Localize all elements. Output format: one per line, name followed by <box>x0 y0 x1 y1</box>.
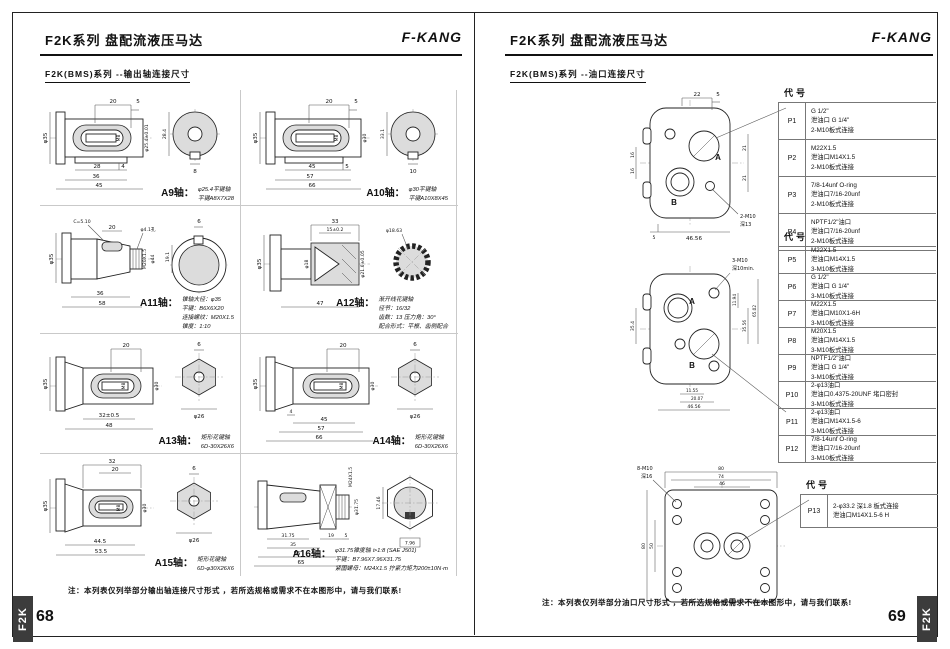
shaft-label-a9: A9轴： φ25.4平键轴平键A8X7X28 <box>161 184 234 204</box>
dim-label: 22 <box>693 92 700 98</box>
left-page-title: F2K系列 盘配流液压马达 <box>45 30 203 49</box>
port-spec: 泄油口M10X1-6H <box>811 309 860 318</box>
dim-label: φ30 <box>142 503 148 512</box>
port-code: P9 <box>778 355 806 381</box>
dim-label: 21 <box>742 145 748 151</box>
port-code: P12 <box>778 436 806 462</box>
shaft-cell-a15: 32 20 φ35 M8 φ30 44.5 53.5 6 φ26 A15轴： 矩… <box>42 455 238 575</box>
table-row: P11 2-φ13油口泄油口M14X1.5-63-M10板式连接 <box>778 408 936 435</box>
left-header-rule <box>40 54 462 56</box>
dim-label: M8 <box>116 134 122 141</box>
shaft-name: A15轴： <box>155 554 193 569</box>
right-side-tab: F2K <box>917 596 937 642</box>
dim-label: φ18 <box>304 259 310 268</box>
shaft-label-a15: A15轴： 矩形花键轴6D-φ30X26X6 <box>155 554 234 574</box>
shaft-desc-line: 6D-30X26X6 <box>201 443 234 452</box>
shaft-desc-line: 矩形花键轴 <box>415 434 448 443</box>
dim-label: φ26 <box>189 538 200 544</box>
left-page-number: 68 <box>36 608 54 626</box>
dim-label: M8 <box>339 382 345 389</box>
grid-line <box>40 453 458 454</box>
port-diagram-1: A B 22 5 16 16 21 21 5 46.56 2-M10 深13 <box>612 86 787 244</box>
shaft-name: A11轴： <box>140 294 178 309</box>
shaft-name: A16轴： <box>293 545 331 560</box>
dim-label: φ26 <box>410 414 421 420</box>
dim-label: 6 <box>197 342 201 348</box>
port-spec: 泄油口7/16-20unf <box>811 444 860 453</box>
dim-label: 46.56 <box>686 236 702 242</box>
shaft-cell-a11: C=5.10 20 φ4.1孔 φ35 M20X1.5 φ44 36 58 6 … <box>42 207 238 333</box>
grid-line <box>456 90 457 576</box>
shaft-desc-line: 连接螺纹：M20X1.5 <box>182 314 234 323</box>
dim-label: 20 <box>111 467 119 473</box>
dim-label: 57 <box>317 426 325 432</box>
dim-label: 33.1 <box>380 129 386 139</box>
port-spec: M22X1.5 <box>811 144 855 153</box>
dim-label: 33 <box>331 219 339 225</box>
shaft-cell-a14: 20 φ35 M8 φ30 4 45 57 66 6 φ26 A14轴： 矩形花… <box>252 335 452 453</box>
dim-label: 74 <box>718 474 724 480</box>
dim-label: φ4.1孔 <box>141 226 156 233</box>
port-spec: 泄油口0.4375-20UNF 堵口密封 <box>811 390 898 399</box>
port-spec: 泄油口M14X1.5 <box>811 336 855 345</box>
port-spec: 泄油口7/16-20unf <box>811 190 860 199</box>
shaft-name: A12轴： <box>336 294 374 309</box>
dim-label: 80 <box>718 466 724 472</box>
left-side-tab: F2K <box>13 596 33 642</box>
port-spec: M22X1.5 <box>811 246 855 255</box>
shaft-label-a10: A10轴： φ30平键轴平键A10X8X45 <box>366 184 448 204</box>
dim-label: 21 <box>742 175 748 181</box>
dim-label: φ35 <box>43 500 49 511</box>
shaft-desc-line: 紧固螺母：M24X1.5 拧紧力矩为200±10N·m <box>335 565 448 574</box>
shaft-desc-line: 6D-φ30X26X6 <box>197 565 234 574</box>
dim-label: 57 <box>306 174 314 180</box>
port-code: P11 <box>778 409 806 435</box>
shaft-label-a11: A11轴： 锥轴大径：φ35平键：B6X6X20连接螺纹：M20X1.5锥度：1… <box>140 294 234 332</box>
shaft-desc-line: 6D-30X26X6 <box>415 443 448 452</box>
grid-line <box>40 205 458 206</box>
shaft-desc-line: 平键：B7.96X7.96X31.75 <box>335 556 448 565</box>
shaft-desc-line: 锥度：1:10 <box>182 323 234 332</box>
callout-label: 深13 <box>740 221 751 228</box>
right-footnote: 注：本列表仅列举部分油口尺寸形式 ，若所选规格或需求不在本图形中，请与我们联系! <box>542 597 922 608</box>
dim-label: 35.56 <box>742 320 747 332</box>
shaft-desc-line: φ31.75锥度轴 ⊳1:8 (SAE J501) <box>335 547 448 556</box>
port-spec: 泄油口M14X1.5 <box>811 255 855 264</box>
dim-label: 32±0.5 <box>99 413 120 419</box>
shaft-name: A13轴： <box>158 432 196 447</box>
dim-label: φ26 <box>194 414 205 420</box>
dim-label: 5 <box>136 99 140 105</box>
right-page-number: 69 <box>888 608 906 626</box>
dim-label: φ35 <box>43 378 49 389</box>
table-row: P6 G 1/2"泄油口 G 1/4"3-M10板式连接 <box>778 273 936 300</box>
port-spec: 3-M10板式连接 <box>811 454 860 463</box>
dim-label: 19.1 <box>165 252 171 262</box>
port-code: P8 <box>778 328 806 354</box>
shaft-name: A10轴： <box>366 184 404 199</box>
dim-label: 5 <box>716 92 720 98</box>
dim-label: 20 <box>339 343 347 349</box>
port-spec: G 1/2" <box>811 107 854 116</box>
port-b-label: B <box>689 361 695 370</box>
dim-label: 28 <box>93 164 101 170</box>
port-spec: NPTF1/2"油口 <box>811 218 860 227</box>
port-spec: 泄油口 G 1/4" <box>811 363 854 372</box>
shaft-desc-line: 径节：16/32 <box>378 305 448 314</box>
shaft-desc-line: 齿数：13 压力角：30° <box>378 314 448 323</box>
right-page-title: F2K系列 盘配流液压马达 <box>510 30 668 49</box>
dim-label: φ18.63 <box>386 228 402 234</box>
dim-label: 10 <box>409 169 417 175</box>
dim-label: φ30 <box>370 381 376 390</box>
dim-label: 5 <box>345 533 348 539</box>
dim-label: φ30 <box>362 133 368 142</box>
dim-label: 58 <box>98 301 106 307</box>
dim-label: 36 <box>92 174 100 180</box>
port-code: P1 <box>778 103 806 139</box>
port-table-p1-p4: 代号 P1 G 1/2"泄油口 G 1/4"2-M10板式连接 P2 M22X1… <box>778 86 936 251</box>
shaft-desc-line: φ30平键轴 <box>409 186 448 195</box>
table-row: P7 M22X1.5泄油口M10X1-6H3-M10板式连接 <box>778 300 936 327</box>
dim-label: 45 <box>320 417 328 423</box>
port-code: P7 <box>778 301 806 327</box>
dim-label: 4 <box>290 409 293 415</box>
dim-label: M24X1.5 <box>348 467 354 487</box>
dim-label: 11.55 <box>686 388 698 393</box>
dim-label: 32 <box>108 459 115 465</box>
table-row: P5 M22X1.5泄油口M14X1.53-M10板式连接 <box>778 246 936 273</box>
dim-label: 20 <box>109 99 117 105</box>
dim-label: 5 <box>345 164 349 170</box>
port-a-label: A <box>689 297 695 306</box>
dim-label: φ35 <box>43 132 49 143</box>
shaft-desc-line: 渐开线花键轴 <box>378 296 448 305</box>
port-spec: 2-φ13油口 <box>811 408 861 417</box>
port-spec: 7/8-14unf O-ring <box>811 181 860 190</box>
dim-label: 16 <box>630 152 636 158</box>
port-spec: 泄油口M14X1.5-6 <box>811 417 861 426</box>
dim-label: 45 <box>95 183 103 189</box>
dim-label: φ25.4±0.01 <box>144 124 150 151</box>
dim-label: 53.5 <box>95 549 108 555</box>
shaft-cell-a10: 20 5 φ35 M8 φ30 45 5 57 66 33.1 10 A10轴：… <box>252 92 452 205</box>
table-row: P1 G 1/2"泄油口 G 1/4"2-M10板式连接 <box>778 102 936 139</box>
center-divider <box>474 12 475 635</box>
dim-label: 35.4 <box>630 321 636 331</box>
shaft-cell-a13: 20 φ35 M8 φ30 32±0.5 48 6 φ26 A13轴： 矩形花键… <box>42 335 238 453</box>
port-code: P6 <box>778 274 806 300</box>
dim-label: 46 <box>719 481 725 487</box>
port-table-p5-p12: 代号 P5 M22X1.5泄油口M14X1.53-M10板式连接 P6 G 1/… <box>778 230 936 463</box>
dim-label: 20 <box>122 343 130 349</box>
shaft-name: A14轴： <box>372 432 410 447</box>
dim-label: 20.07 <box>691 396 703 401</box>
port-spec: 泄油口M14X1.5-6 H <box>833 511 899 520</box>
port-spec: 2-φ13油口 <box>811 381 898 390</box>
dim-label: 8 <box>193 169 197 175</box>
table-row: P8 M20X1.5泄油口M14X1.53-M10板式连接 <box>778 327 936 354</box>
port-spec: M20X1.5 <box>811 327 855 336</box>
dim-label: φ31.75 <box>354 499 360 515</box>
dim-label: 5 <box>653 235 656 241</box>
dim-label: 65.02 <box>752 305 757 317</box>
callout-label: 3-M10 <box>732 258 748 264</box>
port-spec: 泄油口M14X1.5 <box>811 153 855 162</box>
dim-label: 6 <box>197 219 201 225</box>
port-spec: 泄油口 G 1/4" <box>811 116 854 125</box>
dim-label: 6 <box>413 342 417 348</box>
dim-label: 48 <box>105 423 113 429</box>
port-spec: 2-M10板式连接 <box>811 200 860 209</box>
dim-label: 45 <box>308 164 316 170</box>
dim-label: 66 <box>308 183 316 189</box>
right-subtitle: F2K(BMS)系列 --油口连接尺寸 <box>510 68 646 83</box>
callout-label: 深10min. <box>732 265 755 272</box>
port-face-drawing-2: A B 3-M10 深10min. 35.4 11.94 35.56 65.02… <box>612 246 787 414</box>
table-header: 代号 <box>784 230 936 243</box>
dim-label: 4 <box>121 164 125 170</box>
dim-label: M8 <box>334 134 340 141</box>
callout-label: 深16 <box>641 473 652 480</box>
port-code: P13 <box>800 495 828 527</box>
dim-label: 20 <box>325 99 333 105</box>
shaft-desc-line: φ25.4平键轴 <box>198 186 234 195</box>
port-table-p13: 代号 P13 2-φ33.2 深1.8 板式连接泄油口M14X1.5-6 H <box>800 478 938 528</box>
dim-label: φ35 <box>257 258 263 269</box>
dim-label: φ35 <box>253 378 259 389</box>
dim-label: 66 <box>315 435 323 441</box>
dim-label: φ30 <box>154 381 160 390</box>
dim-label: M8 <box>121 382 127 389</box>
dim-label: 15±0.2 <box>326 227 343 233</box>
dim-label: M8 <box>116 504 122 511</box>
port-spec: 2-φ33.2 深1.8 板式连接 <box>833 502 899 511</box>
dim-label: 20 <box>108 225 116 231</box>
left-footnote: 注：本列表仅列举部分输出轴连接尺寸形式 ，若所选规格或需求不在本图形中，请与我们… <box>68 585 418 596</box>
catalog-spread: F2K系列 盘配流液压马达 F-KANG F2K(BMS)系列 --输出轴连接尺… <box>0 0 950 649</box>
table-header: 代号 <box>806 478 938 491</box>
port-spec: M22X1.5 <box>811 300 860 309</box>
port-spec: 2-M10板式连接 <box>811 163 855 172</box>
grid-line <box>240 90 241 576</box>
right-brand-logo: F-KANG <box>800 29 932 45</box>
port-code: P3 <box>778 177 806 213</box>
grid-line <box>40 333 458 334</box>
shaft-cell-a12: 33 15±0.2 φ35 φ18 φ21.6±0.05 47 φ18.63 A… <box>252 207 452 333</box>
shaft-desc-line: 锥轴大径：φ35 <box>182 296 234 305</box>
table-row: P9 NPTF1/2"油口泄油口 G 1/4"3-M10板式连接 <box>778 354 936 381</box>
dim-label: M20X1.5 <box>142 249 148 269</box>
left-brand-logo: F-KANG <box>330 29 462 45</box>
port-spec: 2-M10板式连接 <box>811 126 854 135</box>
shaft-name: A9轴： <box>161 184 194 199</box>
callout-label: 8-M10 <box>637 466 653 472</box>
dim-label: 11.94 <box>732 294 737 306</box>
dim-label: 44.5 <box>94 539 107 545</box>
left-subtitle: F2K(BMS)系列 --输出轴连接尺寸 <box>45 68 190 83</box>
table-row: P3 7/8-14unf O-ring泄油口7/16-20unf2-M10板式连… <box>778 176 936 213</box>
port-b-label: B <box>671 198 677 207</box>
dim-label: 80 <box>641 543 647 549</box>
port-code: P2 <box>778 140 806 176</box>
dim-label: C=5.10 <box>73 219 90 225</box>
dim-label: 28.4 <box>162 129 168 139</box>
dim-label: 47 <box>316 301 324 307</box>
shaft-cell-a9: 20 5 φ35 M8 φ25.4±0.01 28 4 36 45 28.4 8… <box>42 92 238 205</box>
port-face-drawing-1: A B 22 5 16 16 21 21 5 46.56 2-M10 深13 <box>612 86 787 244</box>
port-code: P10 <box>778 382 806 408</box>
port-spec: G 1/2" <box>811 273 854 282</box>
shaft-desc-line: 平键A8X7X28 <box>198 195 234 204</box>
port-code: P5 <box>778 247 806 273</box>
dim-label: φ35 <box>253 132 259 143</box>
port-diagram-2: A B 3-M10 深10min. 35.4 11.94 35.56 65.02… <box>612 246 787 414</box>
port-spec: NPTF1/2"油口 <box>811 354 854 363</box>
table-header: 代号 <box>784 86 936 99</box>
port-spec: 7/8-14unf O-ring <box>811 435 860 444</box>
shaft-label-a16: A16轴： φ31.75锥度轴 ⊳1:8 (SAE J501)平键：B7.96X… <box>293 545 448 574</box>
dim-label: φ44 <box>150 254 156 263</box>
table-row: P2 M22X1.5泄油口M14X1.52-M10板式连接 <box>778 139 936 176</box>
shaft-cell-a16: M24X1.5 φ31.75 31.75 35 19 5 55 65 17.46… <box>252 455 452 575</box>
right-header-rule <box>505 54 933 56</box>
dim-label: φ35 <box>49 253 55 264</box>
port-a-label: A <box>715 153 721 162</box>
dim-label: 6 <box>192 466 196 472</box>
dim-label: 19 <box>328 533 334 539</box>
dim-label: 46.56 <box>687 404 700 410</box>
dim-label: 17.46 <box>376 496 382 509</box>
shaft-desc-line: 平键A10X8X45 <box>409 195 448 204</box>
table-row: P10 2-φ13油口泄油口0.4375-20UNF 堵口密封3-M10板式连接 <box>778 381 936 408</box>
shaft-label-a13: A13轴： 矩形花键轴6D-30X26X6 <box>158 432 234 452</box>
dim-label: 5 <box>354 99 358 105</box>
shaft-label-a14: A14轴： 矩形花键轴6D-30X26X6 <box>372 432 448 452</box>
table-row: P12 7/8-14unf O-ring泄油口7/16-20unf3-M10板式… <box>778 435 936 463</box>
shaft-desc-line: 矩形花键轴 <box>201 434 234 443</box>
shaft-desc-line: 配合形式：平根、齿侧配合 <box>378 323 448 332</box>
dim-label: φ21.6±0.05 <box>360 250 366 277</box>
callout-label: 2-M10 <box>740 214 756 220</box>
dim-label: 36 <box>96 291 104 297</box>
dim-label: 50 <box>649 543 655 549</box>
dim-label: 16 <box>630 168 636 174</box>
shaft-desc-line: 平键：B6X6X20 <box>182 305 234 314</box>
shaft-label-a12: A12轴： 渐开线花键轴径节：16/32齿数：13 压力角：30°配合形式：平根… <box>336 294 448 332</box>
table-row: P13 2-φ33.2 深1.8 板式连接泄油口M14X1.5-6 H <box>800 494 938 528</box>
dim-label: 31.75 <box>281 533 294 539</box>
port-spec: 泄油口 G 1/4" <box>811 282 854 291</box>
shaft-desc-line: 矩形花键轴 <box>197 556 234 565</box>
